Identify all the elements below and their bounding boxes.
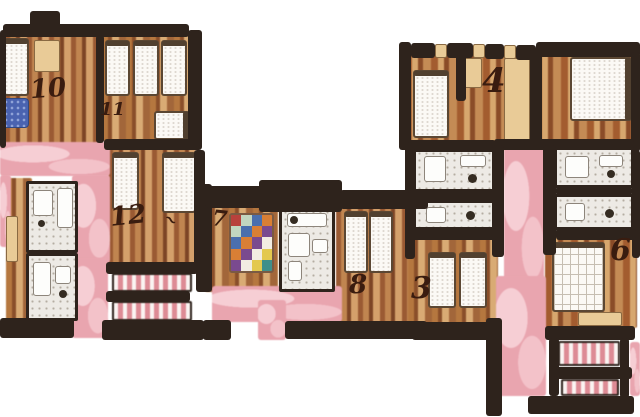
room-6-number: 6 [610,236,631,266]
quilt-patch [262,215,272,226]
wall [530,48,542,148]
cupboard [6,216,18,262]
bench [578,312,622,326]
quilt-patch [262,260,272,271]
wall [188,30,202,149]
bed [162,152,196,213]
bed [344,211,368,273]
room-3-number: 3 [411,274,432,304]
shower [565,156,589,178]
wall [408,140,496,152]
room-10-number: 10 [29,75,67,103]
wall [556,186,632,196]
cabinet [464,58,482,88]
wall [106,291,190,302]
left-stairs-flight-1 [112,273,192,292]
rw-bathroom-right-top [554,147,634,188]
corridor-middle-entry [258,300,286,340]
sink [565,203,585,221]
middle-bathroom [279,206,335,292]
window [473,44,485,58]
wall [486,318,502,416]
bed [154,111,190,140]
bidet [312,239,328,253]
quilt-patch [231,215,241,226]
quilt-patch [262,237,272,248]
wall [536,42,640,57]
quilt-patch [241,215,251,226]
left-bathroom [26,253,78,321]
shower [288,233,310,257]
room-7-number: 7 [211,207,229,230]
wall [485,44,504,59]
quilt-patch [241,249,251,260]
wall [494,139,634,150]
quilt-patch [252,226,262,237]
room-12-number: 12 [109,201,148,231]
toilet-seat [605,209,614,218]
wall [96,35,104,143]
wardrobe [504,58,530,142]
room-11-number: 11 [100,101,125,119]
window [504,45,516,59]
counter [57,188,73,228]
stove-burner [38,220,45,227]
wall [528,396,634,414]
toilet-seat [607,170,615,178]
right-stairs-flight-2 [561,379,619,396]
wall [408,228,498,240]
wall [408,190,496,202]
wall [0,30,6,148]
sink [460,155,486,167]
stove [33,190,53,216]
wall [0,318,74,338]
wall [631,52,640,152]
bed [428,252,456,308]
quilt-patch [231,237,241,248]
quilt-patch [262,226,272,237]
wall [106,262,198,274]
bed [552,242,605,312]
toilet-seat [466,211,475,220]
double-bed [570,57,632,121]
sink [426,207,446,223]
quilt-patch [231,260,241,271]
wall [543,145,556,255]
wall [492,145,504,257]
quilt-patch [241,226,251,237]
left-stairs-flight-2 [112,301,192,321]
blue-rug [2,98,29,128]
wall [411,43,435,58]
sink-drain [290,216,298,224]
corridor-right-vertical [504,147,544,287]
bed [459,252,487,308]
quilt-patch [252,215,262,226]
wall [456,45,466,101]
bed [413,70,449,138]
bed [105,40,130,96]
toilet [55,266,71,284]
quilt-patch [231,226,241,237]
room-8-number: 8 [349,272,367,298]
toilet [288,261,302,281]
bathtub [33,262,51,296]
toilet-seat [59,290,67,298]
room-4-number: 4 [482,64,506,98]
bed [369,211,393,273]
patchwork-quilt [229,213,274,273]
rw-bathroom-left-top [413,147,495,192]
toilet-seat [468,174,477,183]
rw-bathroom-right-bottom [554,194,634,230]
desk [34,40,60,72]
wall [102,320,204,340]
quilt-patch [231,249,241,260]
quilt-patch [252,260,262,271]
quilt-patch [241,260,251,271]
bed [2,38,29,96]
wall [405,147,415,259]
wall [104,139,202,150]
wall [203,320,231,340]
shower [424,156,446,182]
quilt-patch [252,249,262,260]
quilt-patch [252,237,262,248]
corridor-right-bottom [496,276,546,396]
right-stairs-flight-1 [558,341,620,366]
bed [133,40,159,96]
sink [599,155,623,167]
window [435,44,447,58]
wall [399,42,411,150]
wall [620,338,629,398]
left-kitchen [26,181,78,253]
quilt-patch [262,249,272,260]
floorplan: 10 11 12 7 8 3 4 6 ~ [0,0,640,417]
wall [285,321,427,339]
bed [161,40,187,96]
corridor-left-horizontal [0,142,110,176]
quilt-patch [241,237,251,248]
wall [632,150,640,258]
wall [259,180,342,212]
